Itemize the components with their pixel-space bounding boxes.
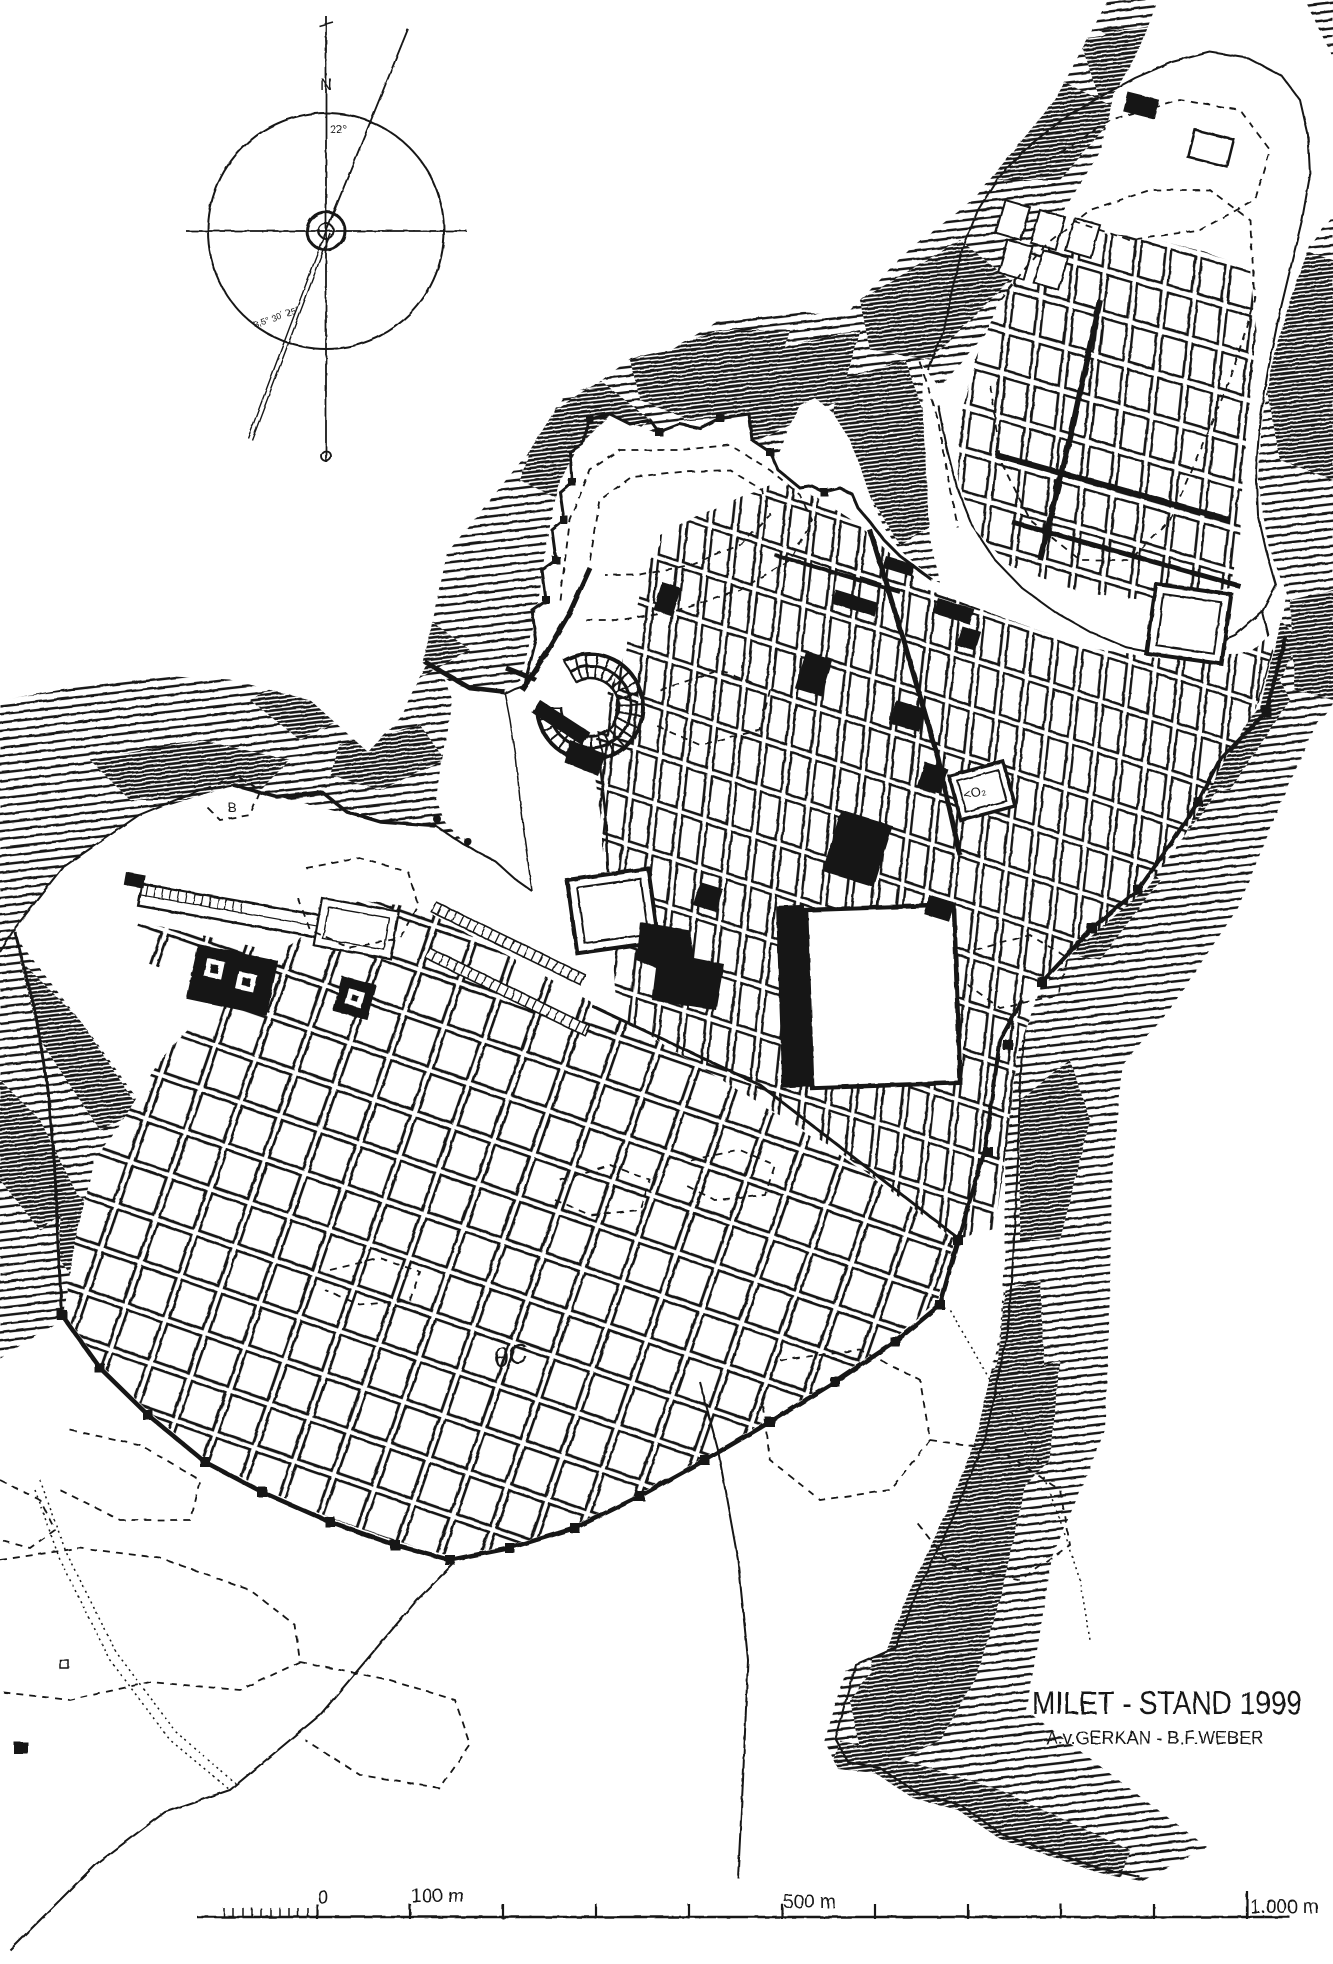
- svg-text:1.000 m: 1.000 m: [1250, 1897, 1319, 1918]
- svg-text:0: 0: [318, 1888, 329, 1909]
- svg-text:B: B: [228, 800, 237, 815]
- svg-text:100 m: 100 m: [411, 1886, 464, 1907]
- svg-text:MILET - STAND 1999: MILET - STAND 1999: [1032, 1685, 1302, 1721]
- svg-text:500 m: 500 m: [783, 1892, 836, 1913]
- svg-text:22°: 22°: [330, 124, 347, 136]
- svg-text:A.v.GERKAN - B.F.WEBER: A.v.GERKAN - B.F.WEBER: [1046, 1728, 1264, 1748]
- svg-text:N: N: [320, 75, 332, 94]
